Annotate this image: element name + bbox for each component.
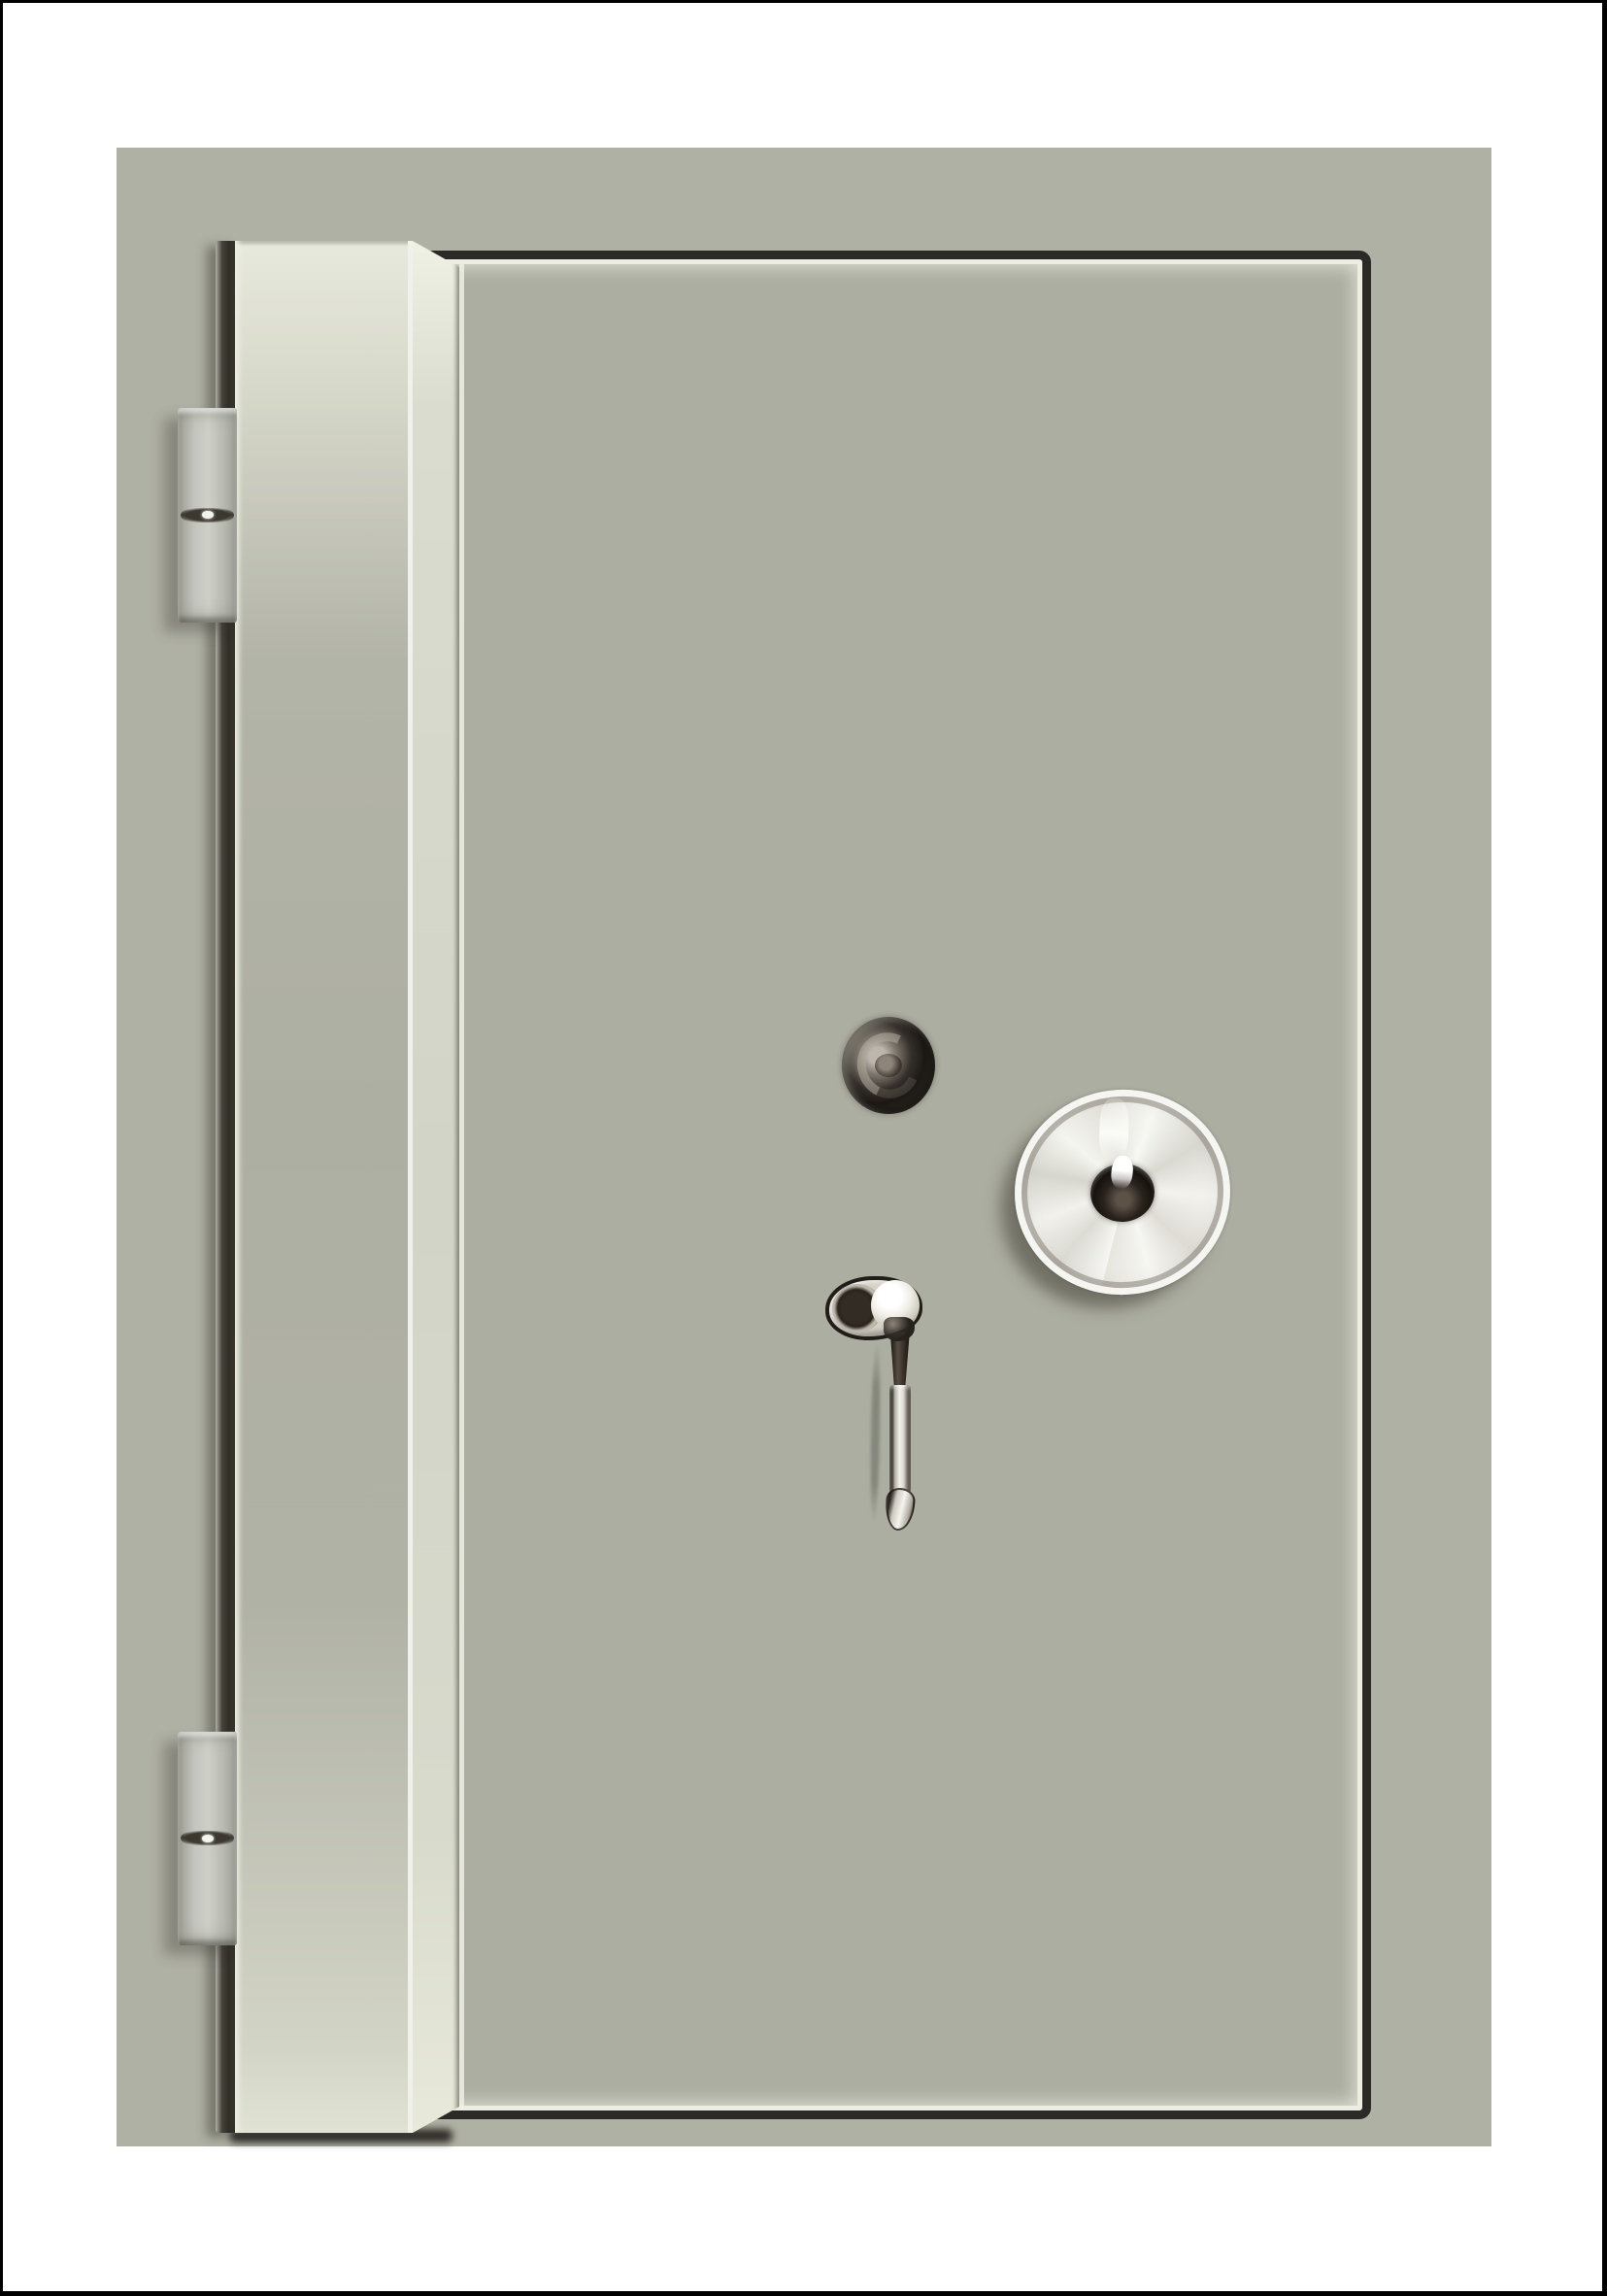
- hinge-top-groove: [181, 508, 234, 523]
- door-edge-stile: [235, 241, 459, 2133]
- handle-knob: [825, 1276, 922, 1340]
- handle-knob-tail: [884, 1317, 915, 1341]
- hinge-bottom-groove: [181, 1831, 234, 1845]
- stile-bevel-face: [413, 241, 459, 2133]
- product-photo-canvas: [0, 0, 1607, 2296]
- door-panel-edge-highlight: [459, 264, 464, 2110]
- handle-lever: [889, 1385, 911, 1494]
- keyhole: [842, 1017, 935, 1114]
- dial-highlight-streak: [1098, 1097, 1129, 1163]
- hinge-top: [178, 408, 237, 623]
- hinge-bottom: [178, 1732, 237, 1945]
- dial-hub: [1088, 1160, 1157, 1225]
- stile-front-face: [235, 241, 413, 2133]
